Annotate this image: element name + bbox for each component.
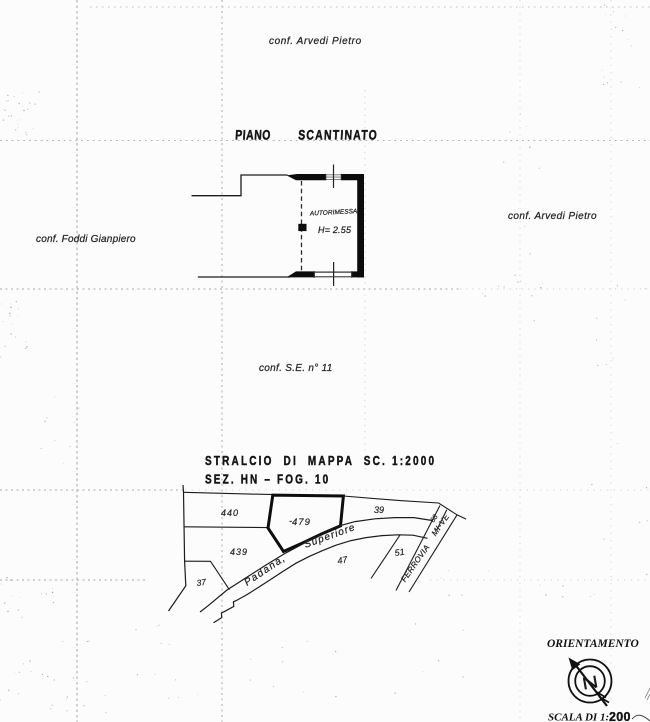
svg-text:440: 440 [221, 508, 239, 518]
svg-text:37: 37 [196, 577, 207, 588]
svg-text:SCALA DI 1:: SCALA DI 1: [548, 712, 609, 722]
svg-text:200: 200 [609, 710, 631, 722]
svg-text:SCANTINATO: SCANTINATO [298, 127, 379, 143]
svg-text:51: 51 [394, 547, 405, 558]
svg-text:H= 2.55: H= 2.55 [318, 225, 352, 235]
svg-text:479: 479 [292, 517, 311, 528]
svg-text:PIANO: PIANO [235, 127, 272, 143]
svg-text:conf. Arvedi Pietro: conf. Arvedi Pietro [269, 36, 362, 47]
svg-text:conf. S.E. n° 11: conf. S.E. n° 11 [259, 363, 333, 374]
svg-text:ORIENTAMENTO: ORIENTAMENTO [547, 638, 639, 650]
svg-text:39: 39 [374, 505, 384, 515]
svg-text:439: 439 [230, 547, 248, 557]
svg-text:STRALCIO DI MAPPA SC. 1:200: STRALCIO DI MAPPA SC. 1:2000 [205, 455, 436, 468]
svg-text:conf. Foddi Gianpiero: conf. Foddi Gianpiero [36, 234, 136, 245]
svg-text:SEZ. HN – FOG. 10: SEZ. HN – FOG. 10 [205, 473, 330, 486]
svg-text:conf. Arvedi Pietro: conf. Arvedi Pietro [508, 211, 597, 222]
